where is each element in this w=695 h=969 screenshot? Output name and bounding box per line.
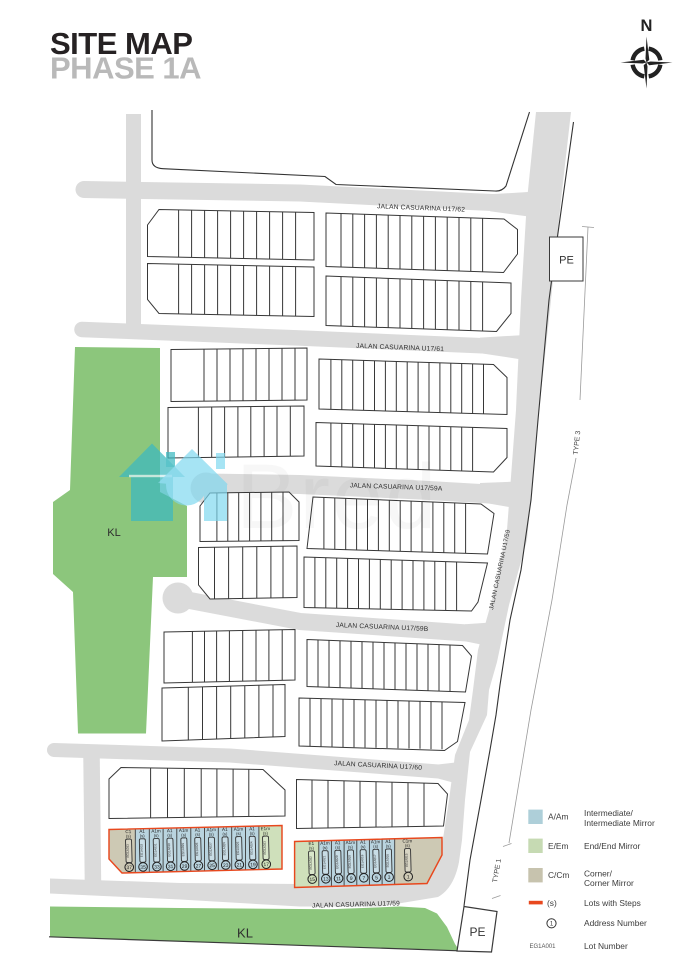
svg-text:33: 33 [154, 864, 160, 870]
svg-text:(s): (s) [263, 830, 269, 835]
svg-text:13: 13 [323, 877, 329, 883]
svg-text:(s): (s) [154, 833, 160, 838]
svg-text:31: 31 [168, 864, 174, 870]
svg-text:Lot Number: Lot Number [584, 941, 628, 951]
svg-text:Intermediate/: Intermediate/ [584, 808, 634, 818]
svg-text:(s): (s) [405, 843, 411, 848]
svg-text:Corner Mirror: Corner Mirror [584, 878, 634, 888]
svg-text:A/Am: A/Am [548, 812, 568, 822]
svg-text:27: 27 [196, 863, 202, 869]
svg-text:(s): (s) [209, 832, 215, 837]
svg-text:C/Cm: C/Cm [548, 870, 569, 880]
svg-text:EG1A030: EG1A030 [167, 843, 171, 857]
svg-text:Intermediate Mirror: Intermediate Mirror [584, 818, 655, 828]
svg-text:25: 25 [209, 863, 215, 869]
svg-text:EG1A019: EG1A019 [348, 855, 352, 869]
svg-text:29: 29 [182, 864, 188, 870]
svg-text:17: 17 [263, 862, 269, 868]
svg-text:(s): (s) [140, 833, 146, 838]
svg-text:EG1A028: EG1A028 [195, 842, 199, 856]
svg-text:(s): (s) [222, 831, 228, 836]
svg-text:EG1A032: EG1A032 [139, 843, 143, 857]
svg-text:EG1A026: EG1A026 [222, 842, 226, 856]
svg-text:EG1A029: EG1A029 [181, 843, 185, 857]
svg-text:(s): (s) [167, 833, 173, 838]
svg-text:23: 23 [223, 863, 229, 869]
svg-text:(s): (s) [250, 831, 256, 836]
svg-text:(s): (s) [547, 898, 557, 908]
svg-text:Lots with Steps: Lots with Steps [584, 898, 641, 908]
svg-text:9: 9 [350, 876, 353, 882]
svg-text:EG1A022: EG1A022 [309, 856, 313, 870]
svg-text:EG1A033: EG1A033 [126, 844, 130, 858]
svg-text:19: 19 [250, 862, 256, 868]
svg-text:15: 15 [309, 877, 315, 883]
svg-text:KL: KL [237, 926, 253, 941]
svg-text:EG1A001: EG1A001 [530, 944, 557, 950]
svg-text:(s): (s) [181, 832, 187, 837]
svg-text:(s): (s) [126, 833, 132, 838]
svg-text:PE: PE [559, 255, 574, 267]
svg-text:(s): (s) [386, 843, 392, 848]
svg-text:(s): (s) [309, 845, 315, 850]
svg-text:EG1A020: EG1A020 [335, 855, 339, 869]
svg-text:EG1A027: EG1A027 [209, 842, 213, 856]
svg-text:N: N [641, 17, 653, 35]
svg-text:3: 3 [388, 875, 391, 881]
svg-text:Corner/: Corner/ [584, 868, 613, 878]
svg-text:37: 37 [126, 865, 132, 871]
svg-text:EG1A015: EG1A015 [405, 853, 409, 867]
svg-text:(s): (s) [323, 845, 329, 850]
svg-text:EG1A017: EG1A017 [373, 854, 377, 868]
svg-text:KL: KL [107, 527, 120, 539]
svg-text:EG1A021: EG1A021 [322, 855, 326, 869]
svg-text:EG1A024: EG1A024 [249, 841, 253, 855]
svg-text:EG1A018: EG1A018 [360, 854, 364, 868]
svg-text:11: 11 [336, 876, 342, 882]
svg-text:Address Number: Address Number [584, 918, 647, 928]
svg-text:PE: PE [469, 925, 485, 939]
svg-text:(s): (s) [361, 844, 367, 849]
svg-text:EG1A031: EG1A031 [153, 843, 157, 857]
svg-text:(s): (s) [348, 844, 354, 849]
svg-text:PHASE 1A: PHASE 1A [50, 51, 201, 86]
svg-text:EG1A025: EG1A025 [236, 841, 240, 855]
svg-text:21: 21 [237, 863, 243, 869]
svg-text:(s): (s) [373, 844, 379, 849]
svg-text:E/Em: E/Em [548, 841, 568, 851]
svg-text:35: 35 [140, 865, 146, 871]
svg-text:(s): (s) [335, 845, 341, 850]
svg-text:1: 1 [407, 874, 410, 880]
svg-text:(s): (s) [195, 832, 201, 837]
svg-text:End/End Mirror: End/End Mirror [584, 841, 641, 851]
svg-text:EG1A023: EG1A023 [263, 841, 267, 855]
svg-text:EG1A016: EG1A016 [386, 854, 390, 868]
svg-text:7: 7 [362, 876, 365, 882]
svg-text:(s): (s) [236, 831, 242, 836]
svg-text:Bred: Bred [236, 446, 438, 548]
svg-text:5: 5 [375, 875, 378, 881]
